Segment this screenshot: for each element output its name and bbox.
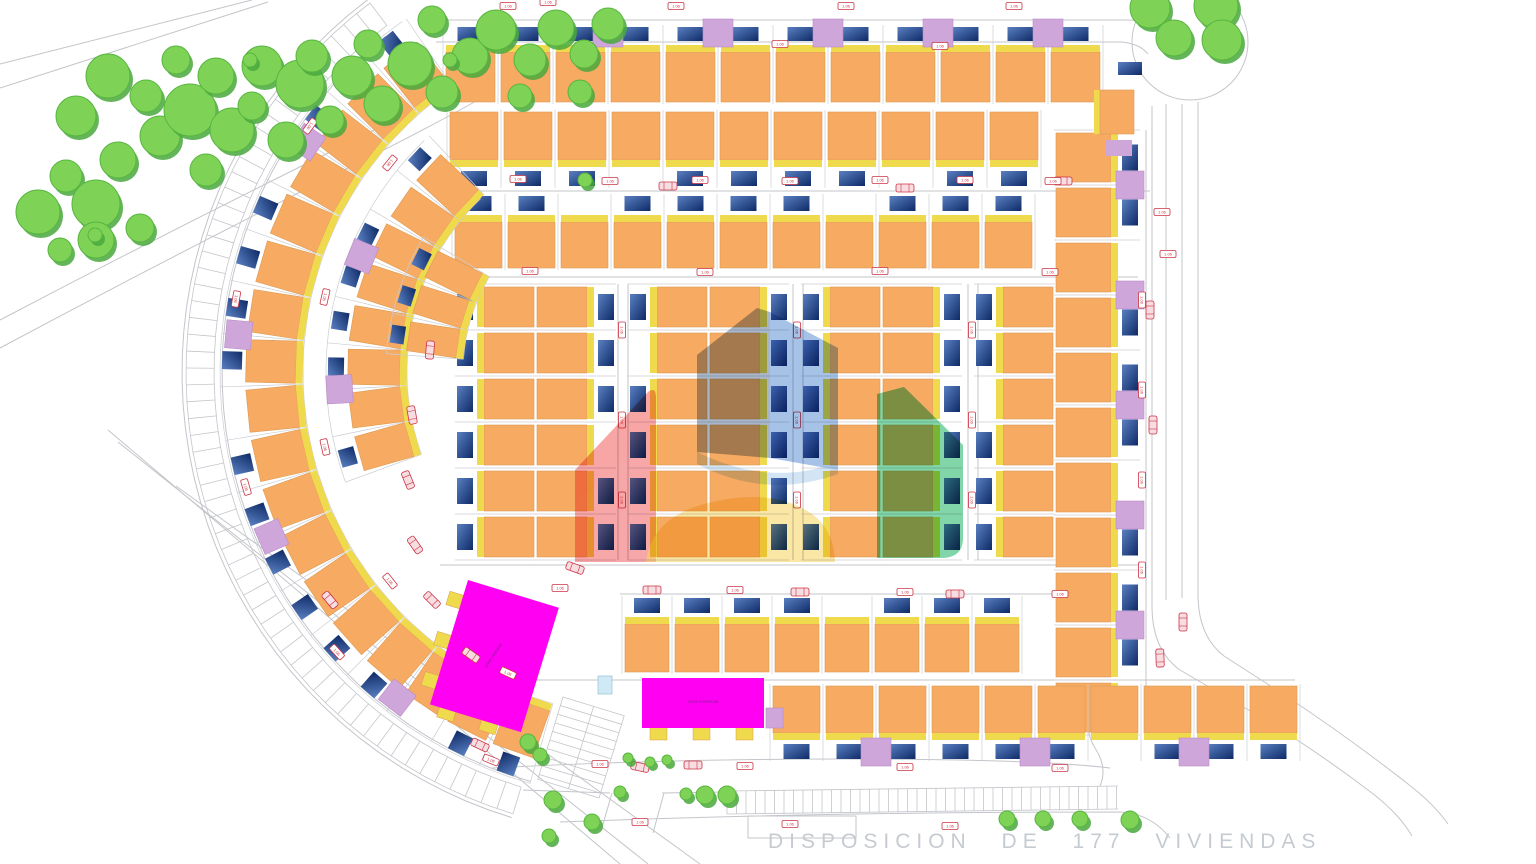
house-body (975, 624, 1019, 672)
bush (662, 755, 675, 769)
house-unit (826, 215, 873, 268)
parking-stall-line (200, 478, 227, 485)
house-body (831, 52, 880, 102)
site-plan: zona comunalzona comercial1.061.061.061.… (0, 0, 1536, 864)
house-body (1144, 686, 1191, 733)
house-body (725, 624, 769, 672)
tree-crown (126, 214, 154, 242)
garden-strip (587, 379, 594, 419)
garden-strip (667, 215, 714, 222)
garden-strip (936, 160, 984, 167)
parking-stall-line (291, 647, 313, 665)
house-body (773, 222, 820, 268)
parked-car-outline (1149, 416, 1157, 434)
bush-crown (662, 755, 672, 765)
parking-stall-line (450, 764, 462, 789)
house-body (1003, 517, 1053, 557)
house-unit (348, 386, 411, 428)
house-unit (457, 517, 534, 557)
plot-label: 1.06 (1139, 472, 1146, 488)
bush-crown (584, 814, 600, 830)
site-plan-svg: zona comunalzona comercial1.061.061.061.… (0, 0, 1536, 864)
porch-block (813, 19, 843, 47)
bush (623, 753, 636, 767)
parking-stall-line (198, 267, 225, 273)
bush-crown (1121, 811, 1139, 829)
car-rect (788, 27, 814, 41)
house-body (1056, 463, 1111, 512)
house-unit (932, 686, 979, 759)
house-body (537, 333, 587, 373)
car-rect (457, 478, 473, 504)
house-body (657, 287, 707, 327)
plot-label: 1.06 (1052, 765, 1068, 772)
car-rect (457, 432, 473, 458)
house-body (932, 686, 979, 733)
house-body (537, 379, 587, 419)
house-body (484, 287, 534, 327)
plot-label: 1.06 (969, 322, 976, 338)
bush (542, 829, 559, 847)
car-rect (497, 752, 521, 777)
garden-strip (996, 333, 1003, 373)
garden-strip (477, 379, 484, 419)
parking-stall-line (252, 596, 276, 610)
parked-car-outline (684, 761, 702, 769)
plot-label-text: 1.06 (696, 178, 705, 183)
plot-label: 1.06 (510, 176, 526, 183)
car-rect (1008, 27, 1034, 41)
house-body (455, 222, 502, 268)
parked-car-outline (946, 590, 964, 598)
car-rect (1261, 744, 1287, 759)
plot-label-text: 1.06 (876, 178, 885, 183)
plot-label: 1.06 (632, 819, 648, 826)
house-body (875, 624, 919, 672)
garden-strip (996, 517, 1003, 557)
parking-stall-line (331, 36, 350, 56)
tree-crown (296, 40, 328, 72)
house-body (883, 287, 933, 327)
road-line (653, 793, 664, 833)
plot-label-text: 1.06 (961, 178, 970, 183)
car-rect (976, 432, 992, 458)
car-rect (630, 294, 646, 320)
car-rect (944, 340, 960, 366)
house-body (882, 112, 930, 160)
plot-label-text: 1.06 (969, 416, 974, 425)
house-unit-porch (224, 320, 252, 350)
plot-label-text: 1.06 (544, 0, 553, 5)
building-tab (693, 726, 710, 740)
house-body (990, 112, 1038, 160)
house-unit (457, 379, 534, 419)
house-unit (666, 112, 714, 186)
parking-stall-line (239, 157, 264, 170)
tree-crown (418, 6, 446, 34)
yellow-block (1094, 90, 1100, 134)
plot-label: 1.06 (1139, 562, 1146, 578)
house-body (348, 387, 404, 429)
car-rect (784, 598, 810, 613)
house-body (830, 471, 880, 511)
house-body (1056, 628, 1111, 677)
parked-car-icon (565, 561, 585, 575)
car-rect (598, 294, 614, 320)
house-body (1056, 353, 1111, 402)
house-unit (828, 112, 876, 186)
house-body (484, 471, 534, 511)
parking-stall-line (542, 766, 603, 785)
garden-strip (614, 215, 661, 222)
tree (1156, 20, 1195, 60)
parking-stall-line (420, 749, 434, 773)
house-unit (775, 598, 819, 672)
plot-label-text: 1.06 (901, 765, 910, 770)
plot-label: 1.06 (1139, 292, 1146, 308)
house-group (622, 596, 1022, 674)
house-body (484, 379, 534, 419)
porch-block (766, 708, 783, 728)
plot-label: 1.06 (1154, 209, 1170, 216)
plot-label: 1.06 (1006, 3, 1022, 10)
house-body (666, 52, 715, 102)
garden-strip (650, 333, 657, 373)
car-rect (843, 27, 869, 41)
house-body (1003, 379, 1053, 419)
house-body (1056, 188, 1111, 237)
parked-car-icon (1146, 301, 1154, 319)
house-unit (667, 196, 714, 268)
house-group (447, 110, 1041, 188)
watermark-shape (697, 308, 770, 458)
parking-stall-line (550, 740, 611, 759)
tree (86, 54, 133, 102)
house-body (826, 686, 873, 733)
parked-car-icon (684, 761, 702, 769)
house-unit (774, 112, 822, 186)
plot-label-text: 1.06 (969, 496, 974, 505)
car-rect (1122, 420, 1138, 446)
house-unit (976, 517, 1053, 557)
house-body (1051, 52, 1100, 102)
parking-stall-line (202, 251, 229, 258)
house-unit (936, 112, 984, 186)
house-body (355, 423, 415, 471)
tree-crown (56, 96, 96, 136)
plot-label-text: 1.06 (842, 4, 851, 9)
car-rect (733, 27, 759, 41)
house-body (985, 222, 1032, 268)
house-body (828, 112, 876, 160)
parking-stall-line (270, 622, 293, 638)
car-rect (984, 598, 1010, 613)
road-line (1122, 42, 1148, 54)
house-body (1003, 471, 1053, 511)
bush-crown (544, 791, 562, 809)
garden-strip (625, 617, 669, 624)
garden-strip (933, 333, 940, 373)
bush (718, 786, 739, 808)
plot-label: 1.06 (969, 492, 976, 508)
house-body (508, 222, 555, 268)
parking-stall-line (513, 787, 521, 814)
house-body (251, 429, 309, 481)
bush-crown (680, 788, 692, 800)
house-body (721, 52, 770, 102)
house-body (720, 222, 767, 268)
tree-crown (50, 160, 82, 192)
garden-strip (477, 425, 484, 465)
plot-label-text: 1.06 (901, 590, 910, 595)
bush-crown (696, 786, 714, 804)
plot-label: 1.06 (727, 587, 743, 594)
parked-car-icon (401, 470, 415, 490)
house-body (484, 333, 534, 373)
parking-stall-line (560, 706, 621, 725)
garden-strip (990, 160, 1038, 167)
plot-label: 1.06 (737, 763, 753, 770)
plot-label-text: 1.06 (701, 270, 710, 275)
plot-label-text: 1.06 (876, 269, 885, 274)
garden-strip (720, 160, 768, 167)
parking-stall-line (228, 553, 253, 565)
bush-crown (1072, 811, 1088, 827)
parked-car-icon (946, 590, 964, 598)
car-rect (976, 340, 992, 366)
tree (162, 46, 193, 78)
plot-label-text: 1.06 (504, 4, 513, 9)
plot-label-text: 1.06 (776, 42, 785, 47)
road-line (0, 0, 252, 64)
tree (190, 154, 225, 190)
plot-label-text: 1.06 (794, 496, 799, 505)
car-rect (943, 196, 969, 211)
car-rect (803, 294, 819, 320)
plot-label-text: 1.06 (672, 4, 681, 9)
tree-crown (1156, 20, 1192, 56)
plot-label-text: 1.06 (786, 822, 795, 827)
bush-crown (1035, 811, 1051, 827)
car-rect (331, 311, 350, 331)
house-body (1056, 298, 1111, 347)
car-rect (328, 357, 344, 375)
parked-car-outline (659, 182, 677, 190)
house-unit (883, 333, 960, 373)
car-rect (890, 196, 916, 211)
plan-caption: DISPOSICION DE 177 VIVIENDAS (768, 830, 1321, 854)
parking-stall-line (350, 704, 368, 725)
tree-crown (86, 54, 130, 98)
porch-block (1179, 738, 1209, 766)
tree-crown (426, 76, 458, 108)
plot-label: 1.06 (619, 322, 626, 338)
plot-label: 1.06 (942, 823, 958, 830)
plot-label-text: 1.06 (514, 177, 523, 182)
parking-stall-line (405, 741, 420, 765)
parked-car-icon (896, 184, 914, 192)
car-rect (996, 196, 1022, 211)
parked-car-outline (791, 588, 809, 596)
porch-block (861, 738, 891, 766)
parking-stall-line (435, 757, 448, 782)
house-unit (457, 333, 534, 373)
garden-strip (933, 287, 940, 327)
parking-stall-line (188, 416, 216, 419)
pool (598, 676, 612, 694)
car-rect (1122, 365, 1138, 391)
house-body (879, 222, 926, 268)
parking-stall-line (325, 683, 345, 703)
car-rect (390, 325, 407, 345)
bush-crown (533, 748, 547, 762)
bush (614, 786, 629, 802)
house-body (614, 222, 661, 268)
bush-crown (999, 811, 1015, 827)
parking-stall-line (193, 447, 221, 452)
house-body (996, 52, 1045, 102)
car-rect (1001, 171, 1027, 186)
tree (126, 214, 157, 246)
plot-label: 1.06 (382, 155, 398, 172)
garden-strip (773, 733, 820, 740)
car-rect (678, 196, 704, 211)
house-unit (675, 598, 719, 672)
car-rect (839, 171, 865, 186)
car-rect (890, 744, 916, 759)
house-unit (803, 287, 880, 327)
house-unit (508, 196, 555, 268)
parking-stall-line (552, 731, 613, 750)
house-unit (537, 379, 614, 419)
house-body (537, 425, 587, 465)
house-body (675, 624, 719, 672)
house-body (348, 349, 401, 385)
house-unit (875, 598, 919, 672)
house-body (886, 52, 935, 102)
plot-label-text: 1.06 (1164, 252, 1173, 257)
parking-stall-line (192, 301, 220, 305)
garden-strip (587, 287, 594, 327)
tree-crown (332, 56, 372, 96)
plot-label: 1.06 (1045, 178, 1061, 185)
plot-label: 1.06 (957, 177, 973, 184)
house-unit (985, 196, 1032, 268)
car-rect (519, 196, 545, 211)
car-rect (245, 502, 270, 526)
parking-stall-line (280, 635, 302, 652)
plot-label: 1.06 (697, 269, 713, 276)
community-building-label: zona comercial (688, 699, 718, 704)
house-unit (976, 287, 1053, 327)
tree (1202, 20, 1245, 64)
parking-stall-line (261, 609, 284, 624)
house-body (941, 52, 990, 102)
house-body (247, 290, 303, 339)
plot-label: 1.06 (969, 412, 976, 428)
garden-strip (975, 617, 1019, 624)
car-rect (1155, 744, 1181, 759)
parked-car-icon (1156, 649, 1165, 667)
parking-stall-line (244, 582, 269, 596)
house-unit (925, 598, 969, 672)
car-rect (457, 386, 473, 412)
car-rect (684, 598, 710, 613)
house-unit (976, 425, 1053, 465)
plot-label: 1.06 (872, 177, 888, 184)
house-unit (537, 287, 614, 327)
house-unit (976, 471, 1053, 511)
parked-car-icon (470, 738, 490, 753)
car-rect (944, 294, 960, 320)
plot-label-text: 1.06 (596, 762, 605, 767)
house-body (246, 385, 300, 432)
house-unit (612, 112, 660, 167)
house-body (830, 517, 880, 557)
parking-stall-line (236, 568, 261, 581)
garden-strip (925, 617, 969, 624)
house-unit (990, 112, 1038, 186)
tree-crown (48, 238, 72, 262)
garden-strip (612, 160, 660, 167)
tree (100, 142, 139, 182)
house-body (1003, 287, 1053, 327)
garden-strip (587, 333, 594, 373)
plot-label-text: 1.06 (1139, 296, 1144, 305)
house-unit (825, 617, 869, 672)
plot-label-text: 1.06 (1158, 210, 1167, 215)
building-tab (650, 726, 667, 740)
porch-block (1033, 19, 1063, 47)
garden-strip (720, 215, 767, 222)
house-body (879, 686, 926, 733)
tree-crown (1202, 20, 1242, 60)
car-rect (976, 524, 992, 550)
parked-car-icon (1179, 613, 1187, 631)
plot-label: 1.06 (522, 268, 538, 275)
house-body (720, 112, 768, 160)
parking-stall-line (189, 317, 217, 320)
garden-strip (823, 287, 830, 327)
house-body (1038, 686, 1085, 733)
house-unit-porch (326, 375, 354, 404)
house-unit (883, 287, 960, 327)
garden-strip (879, 215, 926, 222)
parked-car-outline (407, 535, 424, 554)
car-rect (1049, 744, 1075, 759)
parking-stall-line (465, 771, 476, 797)
parked-car-outline (1146, 301, 1154, 319)
car-rect (1122, 530, 1138, 556)
plot-label-text: 1.06 (606, 179, 615, 184)
plot-label: 1.06 (872, 268, 888, 275)
parking-stall-line (232, 172, 257, 184)
garden-strip (504, 160, 552, 167)
house-body (1003, 333, 1053, 373)
parking-stall-line (212, 219, 238, 228)
house-body (246, 340, 297, 384)
tree (16, 190, 63, 238)
house-unit (720, 112, 768, 186)
car-rect (837, 744, 863, 759)
plot-label: 1.06 (782, 178, 798, 185)
tree-crown (578, 173, 592, 187)
tree-crown (592, 8, 624, 40)
parked-car-outline (1179, 613, 1187, 631)
house-group (974, 284, 1055, 560)
garden-strip (558, 160, 606, 167)
house-body (625, 624, 669, 672)
